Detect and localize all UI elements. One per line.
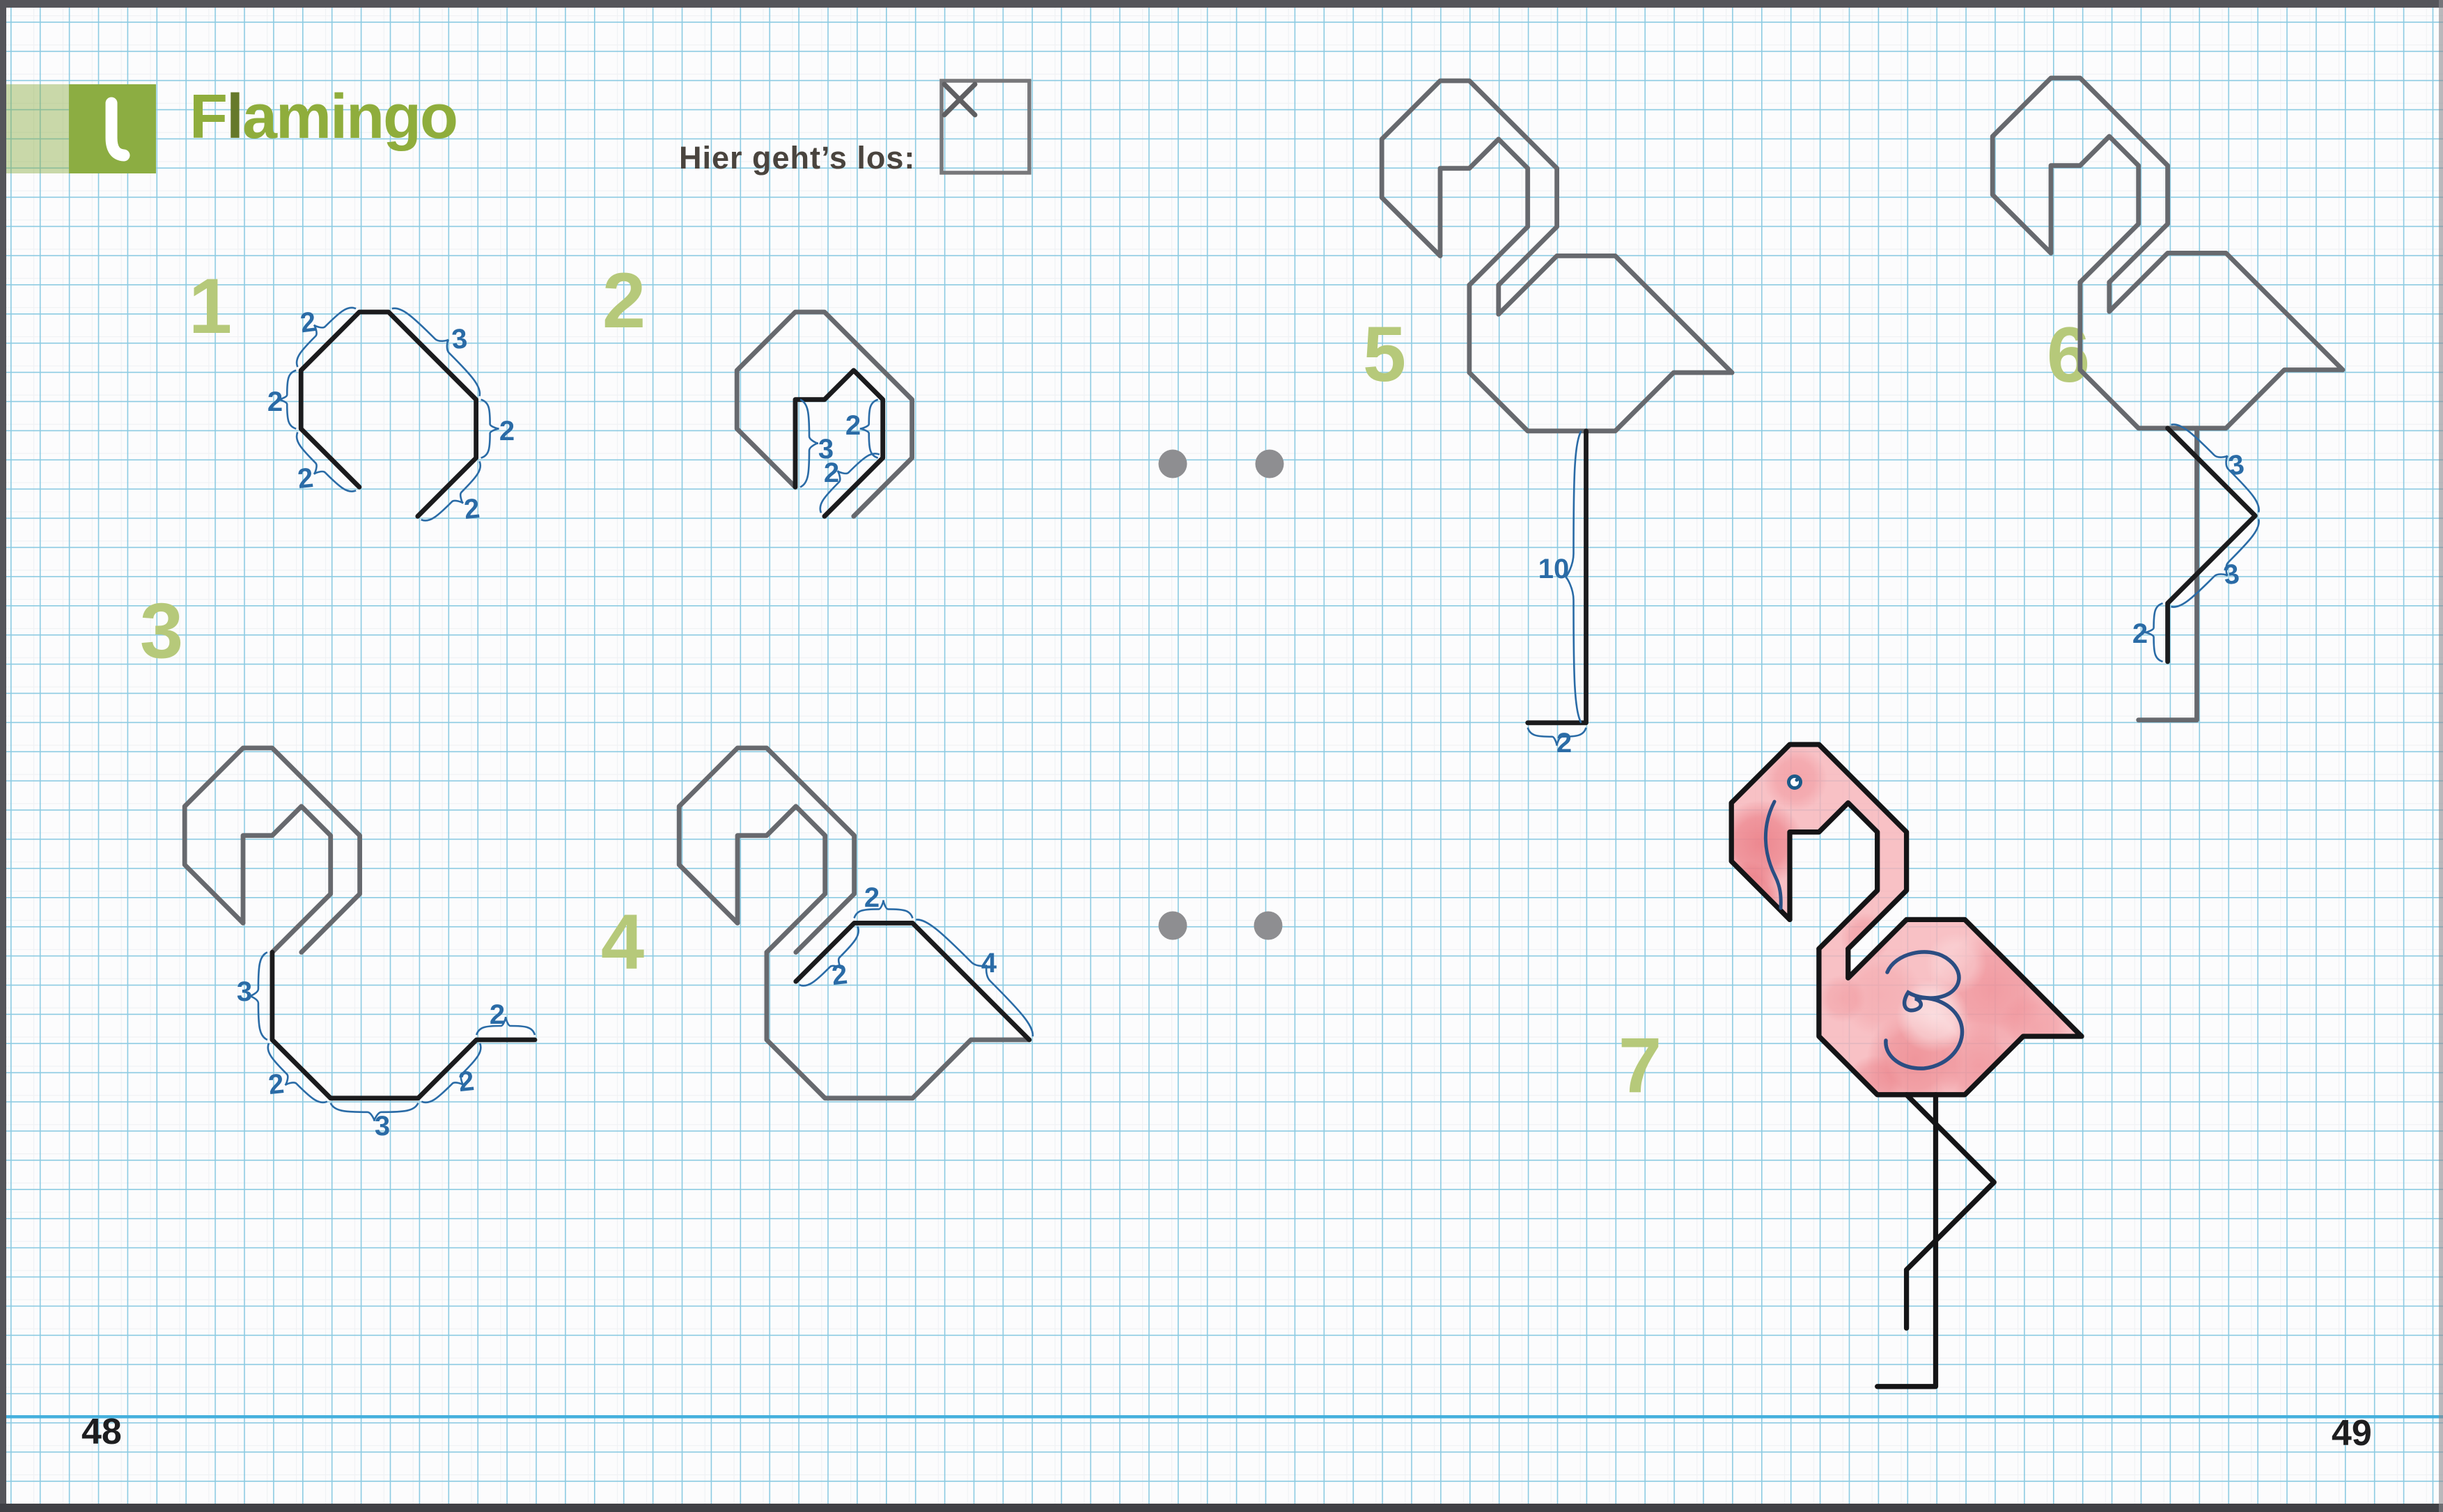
svg-text:Flamingo: Flamingo xyxy=(189,82,457,152)
svg-text:2: 2 xyxy=(267,387,283,417)
svg-text:4: 4 xyxy=(981,948,997,979)
svg-text:Hier geht’s los:: Hier geht’s los: xyxy=(679,140,915,176)
svg-text:2: 2 xyxy=(267,1068,286,1100)
svg-text:2: 2 xyxy=(845,410,861,441)
svg-text:2: 2 xyxy=(462,493,481,525)
svg-text:2: 2 xyxy=(490,999,505,1030)
svg-text:3: 3 xyxy=(375,1111,390,1141)
svg-text:2: 2 xyxy=(1556,728,1572,758)
svg-text:5: 5 xyxy=(1363,311,1406,398)
svg-text:49: 49 xyxy=(2332,1413,2372,1453)
svg-text:3: 3 xyxy=(140,587,183,674)
svg-text:2: 2 xyxy=(830,959,849,991)
svg-text:2: 2 xyxy=(602,257,646,344)
svg-text:3: 3 xyxy=(237,976,252,1007)
svg-text:2: 2 xyxy=(296,462,315,494)
svg-text:2: 2 xyxy=(457,1066,476,1098)
svg-text:3: 3 xyxy=(451,323,469,355)
svg-text:4: 4 xyxy=(601,898,644,985)
svg-text:2: 2 xyxy=(2132,618,2148,649)
svg-text:48: 48 xyxy=(81,1412,122,1452)
svg-text:2: 2 xyxy=(864,882,880,913)
svg-text:1: 1 xyxy=(189,263,232,350)
svg-text:6: 6 xyxy=(2047,311,2090,398)
svg-text:2: 2 xyxy=(499,416,515,446)
svg-text:10: 10 xyxy=(1538,554,1570,584)
svg-text:2: 2 xyxy=(824,458,839,488)
svg-text:7: 7 xyxy=(1618,1022,1662,1109)
